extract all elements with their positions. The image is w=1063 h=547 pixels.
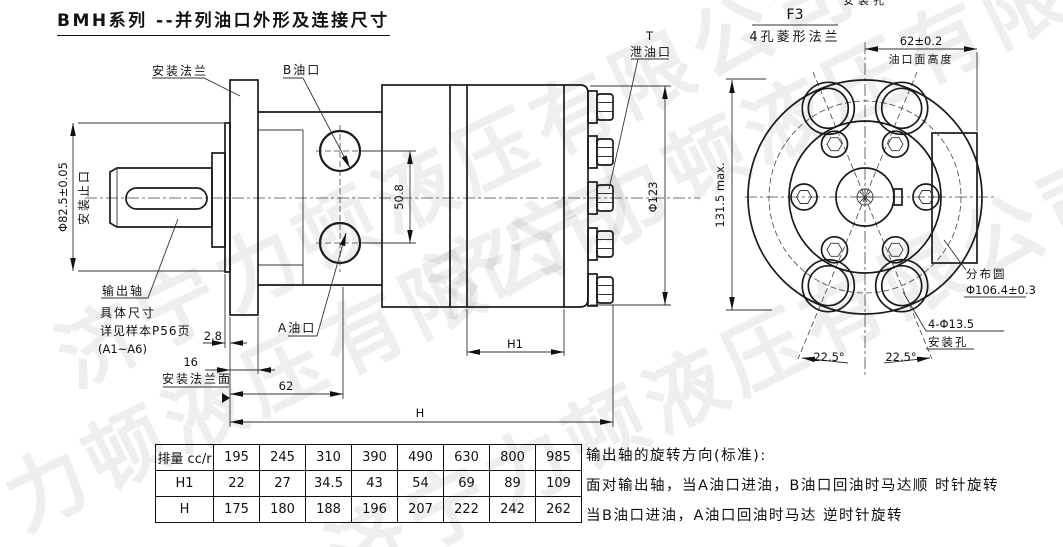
- top-cut-label: 安装孔: [843, 0, 888, 7]
- table-cell: 180: [260, 497, 306, 523]
- port-a-label: A油口: [278, 321, 316, 335]
- flange-code: F3: [787, 7, 804, 23]
- angle-right-dim: 22.5°: [885, 350, 916, 364]
- table-cell: 630: [444, 445, 490, 471]
- dim-2-8: 2.8: [204, 329, 222, 343]
- table-cell: 54: [398, 471, 444, 497]
- displacement-table: 排量 cc/r 195 245 310 390 490 630 800 985 …: [155, 444, 582, 523]
- port-block: [258, 112, 382, 285]
- table-cell: 222: [444, 497, 490, 523]
- table-cell: 89: [490, 471, 536, 497]
- port-a-circle: [316, 223, 365, 263]
- table-cell: 34.5: [306, 471, 352, 497]
- motor-housing: [382, 85, 588, 307]
- table-cell: 242: [490, 497, 536, 523]
- table-cell: 69: [444, 471, 490, 497]
- pilot-diameter-dim: Φ82.5±0.05: [56, 162, 70, 232]
- dist-circle-dim: Φ106.4±0.3: [966, 283, 1036, 297]
- table-cell: 262: [536, 497, 582, 523]
- rotation-notes-heading: 输出轴的旋转方向(标准):: [586, 441, 1058, 471]
- table-cell: 188: [306, 497, 352, 523]
- table-row: H1 22 27 34.5 43 54 69 89 109: [156, 471, 582, 497]
- dim-16: 16: [183, 355, 198, 369]
- table-cell: 195: [214, 445, 260, 471]
- port-b-label: B油口: [283, 63, 321, 77]
- table-cell: 245: [260, 445, 306, 471]
- table-cell: 196: [352, 497, 398, 523]
- catalog-page: { "title": "BMH系列 --并列油口外形及连接尺寸", "water…: [0, 0, 1063, 547]
- shaft-note-line3: (A1~A6): [98, 342, 147, 356]
- mount-holes-label: 安装孔: [928, 335, 969, 349]
- drain-t-label: T: [645, 29, 654, 43]
- output-shaft: [110, 123, 230, 272]
- rotation-note-clockwise: 面对输出轴，当A油口进油，B油口回油时马达顺 时针旋转: [586, 471, 1058, 501]
- table-cell: 109: [536, 471, 582, 497]
- front-dimensions: [726, 25, 1026, 363]
- table-cell: 310: [306, 445, 352, 471]
- side-leaders: [101, 59, 669, 336]
- drain-port-label: 泄油口: [630, 45, 672, 59]
- rotation-notes: 输出轴的旋转方向(标准): 面对输出轴，当A油口进油，B油口回油时马达顺 时针旋…: [586, 441, 1058, 531]
- flange-type-label: 4孔菱形法兰: [749, 30, 840, 45]
- output-shaft-label: 输出轴: [102, 283, 144, 298]
- table-cell: 175: [214, 497, 260, 523]
- side-view: Φ82.5±0.05 安装止口 输出轴 具体尺寸 详见样本P56页 (A1~A6…: [56, 29, 700, 427]
- shaft-note-line1: 具体尺寸: [100, 306, 156, 320]
- dim-131-5: 131.5 max.: [713, 162, 727, 227]
- table-row-label: 排量 cc/r: [156, 445, 214, 471]
- dim-50-8: 50.8: [392, 184, 406, 210]
- table-cell: 985: [536, 445, 582, 471]
- table-row-label: H1: [156, 471, 214, 497]
- dim-62-02: 62±0.2: [900, 34, 943, 48]
- dim-h1: H1: [507, 337, 523, 351]
- table-cell: 800: [490, 445, 536, 471]
- datum-face-arrow: [222, 393, 230, 403]
- mounting-flange: [230, 80, 258, 315]
- table-row: 排量 cc/r 195 245 310 390 490 630 800 985: [156, 445, 582, 471]
- table-cell: 390: [352, 445, 398, 471]
- rotation-note-counterclockwise: 当B油口进油，A油口回油时马达 逆时针旋转: [586, 501, 1058, 531]
- angle-left-dim: 22.5°: [813, 350, 844, 364]
- table-cell: 27: [260, 471, 306, 497]
- mount-face-label: 安装法兰面: [162, 371, 232, 386]
- table-cell: 43: [352, 471, 398, 497]
- dist-circle-label: 分布圆: [966, 267, 1007, 281]
- table-row-label: H: [156, 497, 214, 523]
- mount-holes-dim: 4-Φ13.5: [928, 317, 974, 331]
- dim-dia-123: Φ123: [646, 181, 660, 212]
- table-cell: 207: [398, 497, 444, 523]
- mounting-flange-label: 安装法兰: [152, 63, 208, 78]
- dim-h: H: [416, 406, 425, 420]
- shaft-note-line2: 详见样本P56页: [100, 323, 191, 338]
- table-cell: 22: [214, 471, 260, 497]
- table-cell: 490: [398, 445, 444, 471]
- end-cap-bolts: [588, 91, 613, 306]
- port-face-height-label: 油口面高度: [889, 52, 954, 66]
- port-b-circle: [316, 131, 365, 171]
- pilot-label: 安装止口: [76, 169, 91, 225]
- table-row: H 175 180 188 196 207 222 242 262: [156, 497, 582, 523]
- dim-62: 62: [279, 379, 294, 393]
- front-view: F3 4孔菱形法兰 安装孔 62±0.2 油口面高度 131.5 max. 分布…: [713, 0, 1036, 376]
